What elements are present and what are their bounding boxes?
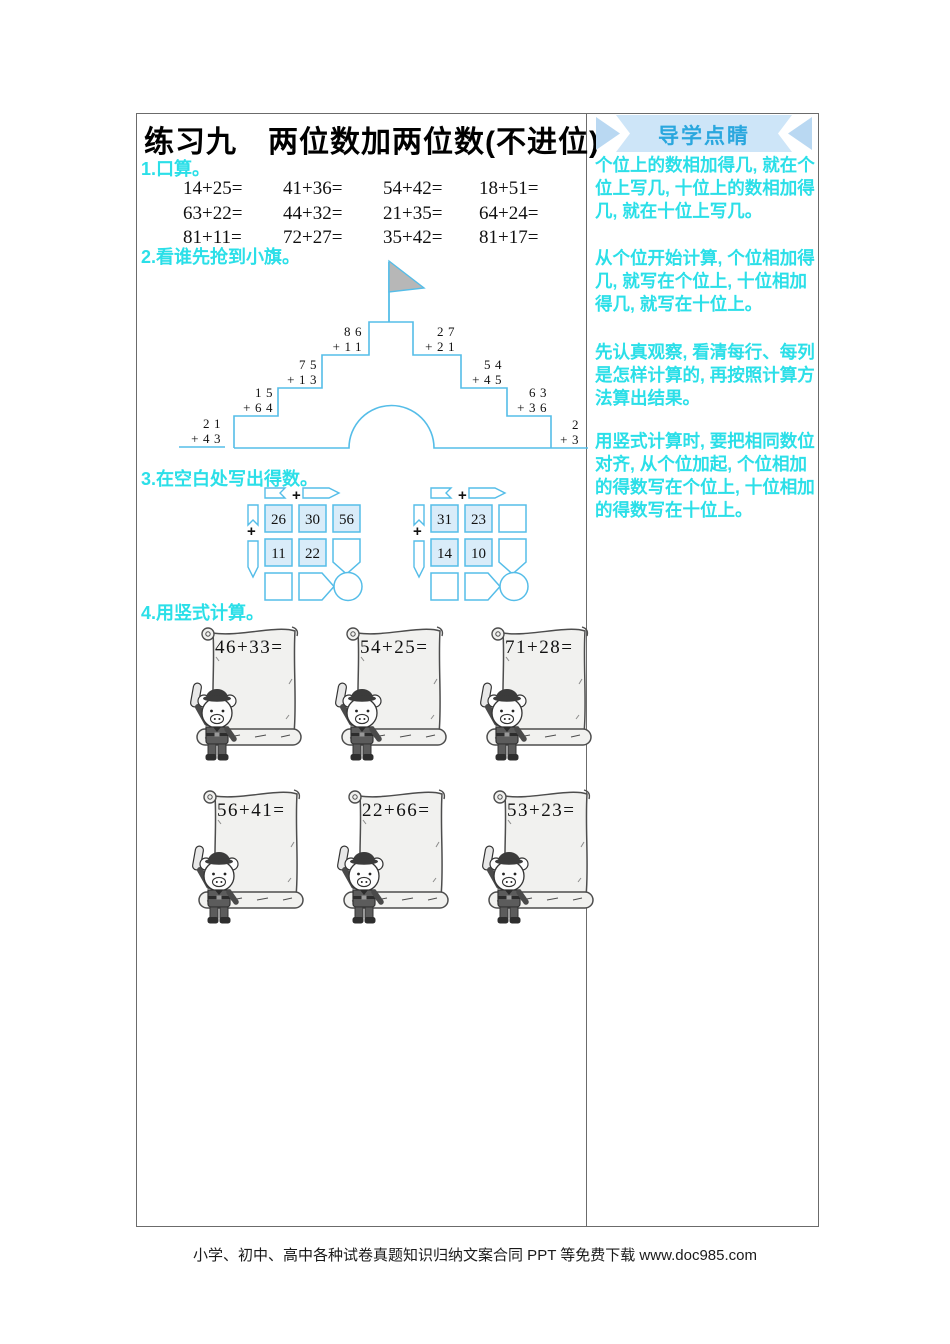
svg-text:30: 30 — [305, 512, 320, 528]
castle-problem: 21 +43 — [179, 416, 225, 446]
svg-text:56: 56 — [339, 512, 355, 528]
answer-square — [431, 573, 458, 600]
answer-circle — [500, 573, 528, 601]
scroll-problem: 22+66= — [362, 800, 430, 822]
castle-problem: 15 +64 — [231, 385, 277, 415]
section-4-label: 4.用竖式计算。 — [141, 603, 264, 623]
scroll-card: 22+66= — [336, 786, 454, 934]
castle-problem: 63 +36 — [505, 385, 551, 415]
castle-problem: 27 +21 — [413, 324, 459, 354]
scroll-card: 56+41= — [191, 786, 309, 934]
tip-paragraph: 先认真观察, 看清每行、每列是怎样计算的, 再按照计算方法算出结果。 — [595, 341, 815, 410]
svg-text:11: 11 — [271, 546, 285, 562]
footer-text: 小学、初中、高中各种试卷真题知识归纳文案合同 PPT 等免费下载 www.doc… — [0, 1244, 950, 1265]
oral-problems-grid: 14+25= 41+36= 54+42= 18+51= 63+22= 44+32… — [183, 178, 573, 252]
plus-sign: + — [292, 487, 301, 504]
plus-sign: + — [413, 523, 422, 540]
oral-problem: 41+36= — [283, 178, 383, 203]
tips-body: 个位上的数相加得几, 就在个位上写几, 十位上的数相加得几, 就在十位上写几。 … — [595, 154, 815, 546]
castle-problem: 86 +11 — [320, 324, 366, 354]
shape-grid-2: + + 31 23 14 10 — [411, 485, 531, 603]
svg-text:14: 14 — [437, 546, 453, 562]
castle-problem: 2 +3 — [545, 417, 583, 447]
section-1-label: 1.口算。 — [141, 159, 210, 179]
svg-text:31: 31 — [437, 512, 452, 528]
arrow-right-icon — [469, 488, 505, 498]
worksheet-page: 练习九 两位数加两位数(不进位) 1.口算。 14+25= 41+36= 54+… — [0, 0, 950, 1344]
svg-text:10: 10 — [471, 546, 486, 562]
answer-pentagon-right — [465, 573, 500, 600]
shape-grid-1: + + 26 30 56 11 22 — [245, 485, 365, 603]
scroll-problem: 53+23= — [507, 800, 575, 822]
scroll-problem: 46+33= — [215, 637, 283, 659]
arrow-down-icon — [248, 541, 258, 577]
tip-paragraph: 用竖式计算时, 要把相同数位对齐, 从个位加起, 个位相加的得数写在个位上, 十… — [595, 430, 815, 522]
svg-text:26: 26 — [271, 512, 287, 528]
scroll-card: 54+25= — [334, 623, 452, 771]
oral-problem: 18+51= — [479, 178, 573, 203]
castle-figure: 21 +43 15 +64 75 +13 86 +11 27 +21 54 +4… — [141, 257, 588, 451]
scroll-card: 71+28= — [479, 623, 597, 771]
arrow-right-icon — [303, 488, 339, 498]
scroll-card: 53+23= — [481, 786, 599, 934]
plus-sign: + — [247, 523, 256, 540]
worksheet-table: 练习九 两位数加两位数(不进位) 1.口算。 14+25= 41+36= 54+… — [136, 113, 819, 1227]
oral-problem: 63+22= — [183, 203, 283, 228]
svg-text:23: 23 — [471, 512, 486, 528]
oral-problem: 64+24= — [479, 203, 573, 228]
flag-icon — [389, 261, 424, 292]
oral-problem: 14+25= — [183, 178, 283, 203]
oral-problem: 44+32= — [283, 203, 383, 228]
arrow-down-icon — [414, 541, 424, 577]
scroll-problem: 54+25= — [360, 637, 428, 659]
plus-sign: + — [458, 487, 467, 504]
scroll-problem: 71+28= — [505, 637, 573, 659]
answer-pentagon-right — [299, 573, 334, 600]
pennant-icon — [265, 488, 285, 498]
svg-text:22: 22 — [305, 546, 320, 562]
answer-square — [265, 573, 292, 600]
tips-header: 导学点睛 — [590, 120, 818, 150]
tips-banner: 导学点睛 — [590, 115, 818, 152]
page-title: 练习九 两位数加两位数(不进位) — [144, 117, 600, 161]
scroll-problem: 56+41= — [217, 800, 285, 822]
tip-paragraph: 个位上的数相加得几, 就在个位上写几, 十位上的数相加得几, 就在十位上写几。 — [595, 154, 815, 223]
tip-paragraph: 从个位开始计算, 个位相加得几, 就写在个位上, 十位相加得几, 就写在十位上。 — [595, 247, 815, 316]
answer-pentagon-down — [333, 539, 360, 574]
oral-problem: 81+17= — [479, 227, 573, 252]
oral-problem: 21+35= — [383, 203, 479, 228]
castle-problem: 75 +13 — [275, 357, 321, 387]
pennant-down-icon — [414, 505, 424, 525]
answer-circle — [334, 573, 362, 601]
scroll-card: 46+33= — [189, 623, 307, 771]
oral-problem: 54+42= — [383, 178, 479, 203]
pennant-down-icon — [248, 505, 258, 525]
answer-square — [499, 505, 526, 532]
answer-pentagon-down — [499, 539, 526, 574]
castle-problem: 54 +45 — [460, 357, 506, 387]
pennant-icon — [431, 488, 451, 498]
oral-problem: 35+42= — [383, 227, 479, 252]
